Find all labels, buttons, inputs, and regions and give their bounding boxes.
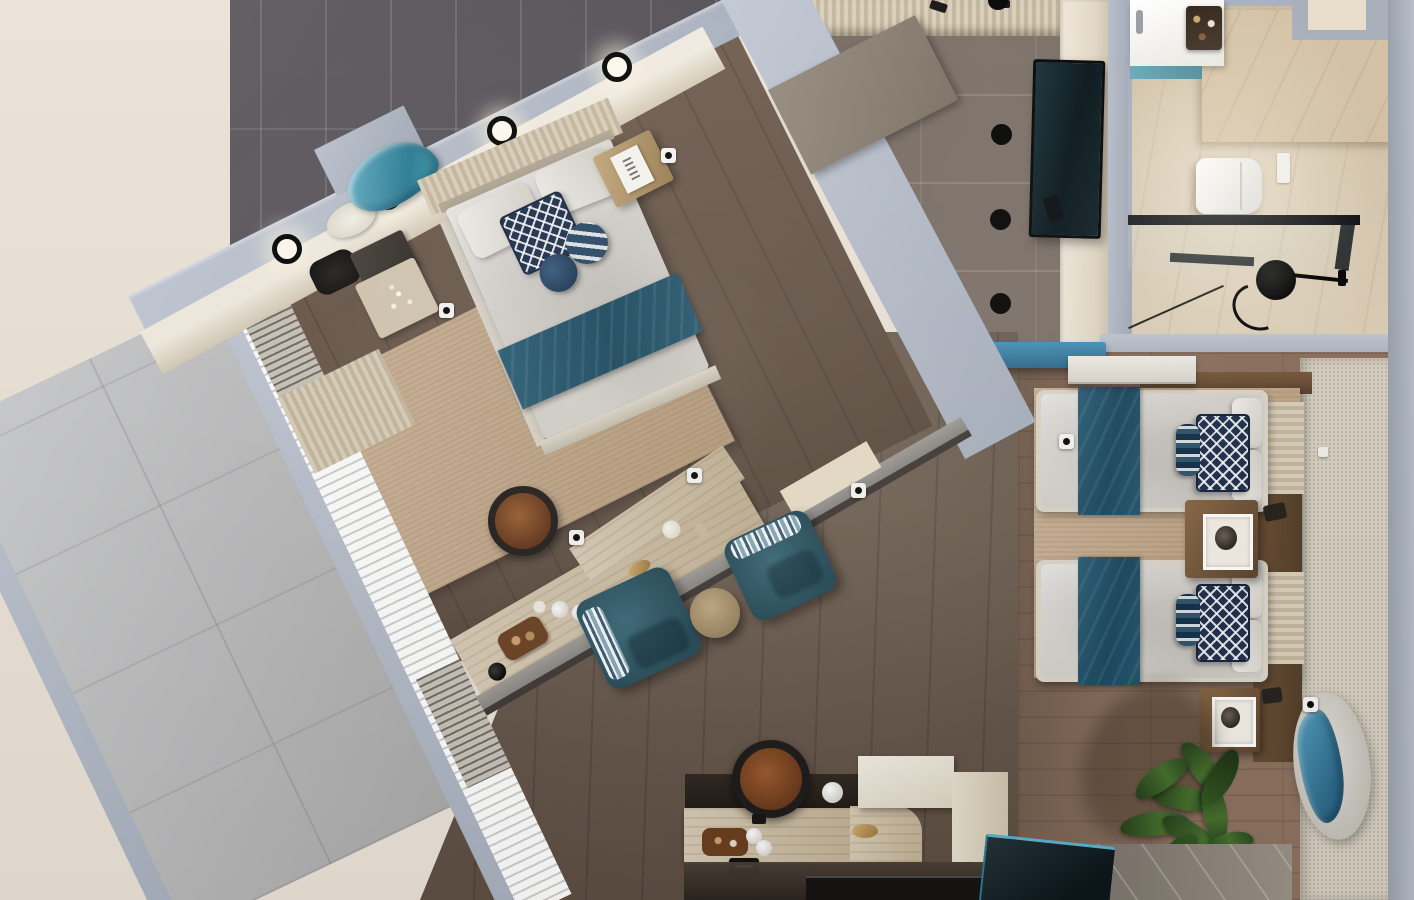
- tour-hotspot-living-floor-right[interactable]: [851, 483, 866, 498]
- tour-hotspot-living-chair-left[interactable]: [569, 530, 584, 545]
- counter-egg-white: [756, 840, 772, 856]
- tour-hotspot-bedroom-floor-right[interactable]: [661, 148, 676, 163]
- vanity-group: [0, 0, 1414, 900]
- tour-hotspot-bedroom-rug[interactable]: [439, 303, 454, 318]
- shelf-ball-white: [822, 782, 843, 803]
- glass-table-teal-edge: [979, 833, 1116, 900]
- leather-stool: [732, 740, 810, 818]
- tour-hotspot-twin-bed-runner[interactable]: [1059, 434, 1074, 449]
- tour-hotspot-twin-chaise[interactable]: [1303, 697, 1318, 712]
- counter-black-item: [752, 814, 766, 824]
- wall-socket: [1318, 447, 1328, 457]
- counter-tray: [702, 828, 748, 856]
- tour-hotspot-living-console-end[interactable]: [687, 468, 702, 483]
- tv-console-glass: [806, 876, 986, 900]
- counter-gold-dish: [852, 824, 878, 838]
- minibar-cabinet[interactable]: [858, 756, 954, 808]
- floorplan-render-canvas: [0, 0, 1414, 900]
